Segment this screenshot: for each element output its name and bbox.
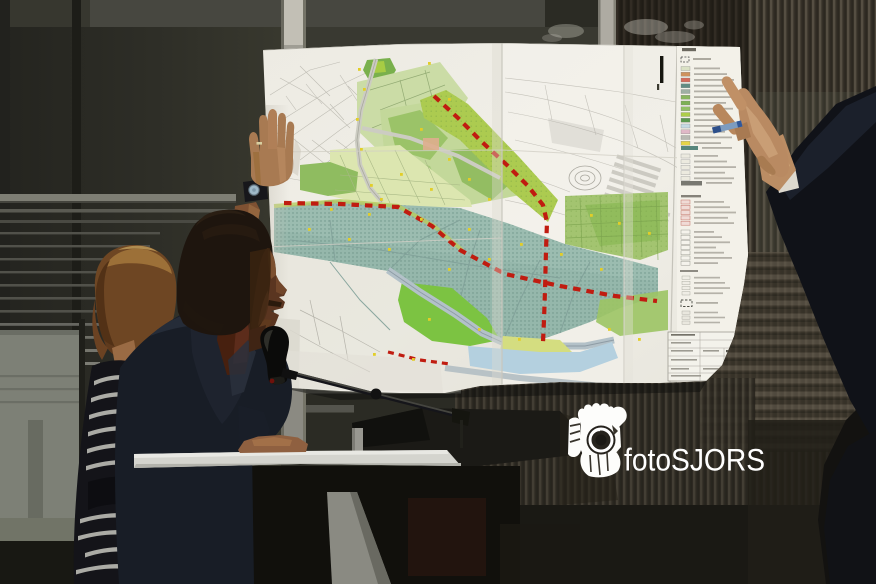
svg-text:fotoSJORS: fotoSJORS [624, 442, 765, 478]
